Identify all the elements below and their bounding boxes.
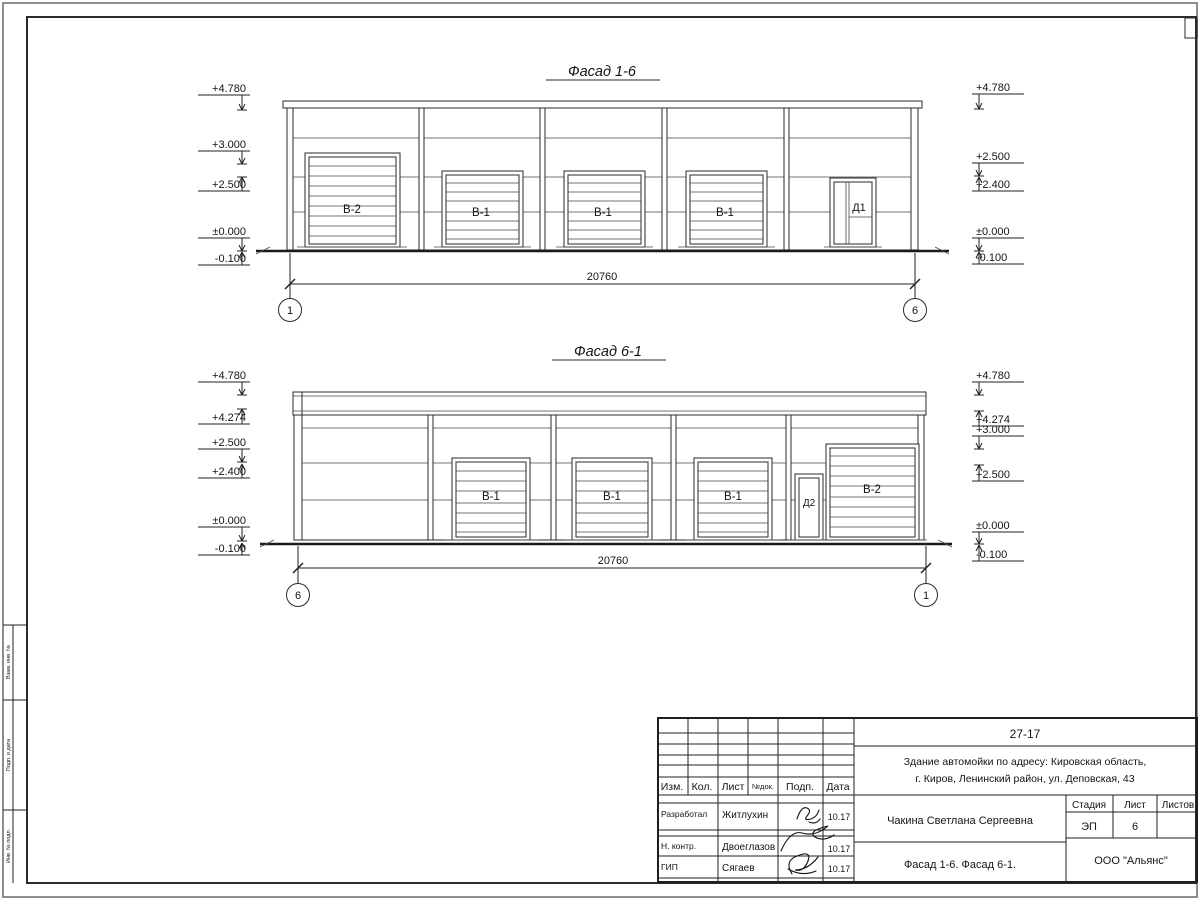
col-data: Дата [826, 781, 849, 793]
elevation-value: ±0.000 [212, 226, 246, 238]
elevation-arrow [972, 532, 1024, 544]
dimension-value: 20760 [598, 555, 629, 567]
signatures [781, 808, 834, 874]
gate-b1-label: В-1 [472, 207, 490, 219]
elevation-value: +2.500 [976, 469, 1010, 481]
row-role: Разработал [661, 809, 707, 819]
axis-number-left: 1 [287, 305, 293, 317]
elevation-arrow [198, 238, 250, 251]
row-name: Житлухин [722, 810, 768, 821]
project-line-1: Здание автомойки по адресу: Кировская об… [904, 756, 1147, 768]
gate-b2-f2: В-2 [826, 444, 919, 540]
col-podp: Подп. [786, 781, 814, 793]
side-stamp: Взам. инв. № Подп. и дата Инв. № подл. [3, 625, 27, 883]
elevation-marks-f1-left: +4.780 +3.000 +2.500 ±0.000 -0.100 [198, 83, 250, 265]
door-d2-label: Д2 [803, 498, 816, 509]
elevation-value: +4.780 [212, 83, 246, 95]
door-d2-f2: Д2 [795, 474, 823, 540]
elevation-value: +2.400 [976, 179, 1010, 191]
mullion [671, 415, 676, 540]
mullion [662, 108, 667, 250]
elevation-value: -0.100 [976, 252, 1007, 264]
elevation-value: +4.780 [976, 82, 1010, 94]
col-kol: Кол. [692, 781, 713, 793]
gate-b1-label: В-1 [724, 491, 742, 503]
gate-b1-label: В-1 [482, 491, 500, 503]
signature-scribble [797, 808, 820, 823]
gate-b1-label: В-1 [594, 207, 612, 219]
author-name: Чакина Светлана Сергеевна [887, 815, 1034, 827]
gate-leaf [309, 157, 396, 244]
row-date: 10.17 [828, 864, 851, 874]
elevation-value: +4.780 [976, 370, 1010, 382]
elevation-value: +4.780 [212, 370, 246, 382]
elevation-value: +2.400 [212, 466, 246, 478]
row-date: 10.17 [828, 812, 851, 822]
gate-b1-f2-3: В-1 [694, 458, 772, 540]
elevation-arrow [198, 527, 250, 541]
axis-number-left: 6 [295, 590, 301, 602]
mullion [540, 108, 545, 250]
stage-label: Стадия [1072, 800, 1106, 811]
gate-b1-f2-2: В-1 [572, 458, 652, 540]
gate-b1-f1-1: В-1 [442, 171, 523, 247]
title-block: Изм. Кол. Лист №док. Подп. Дата Разработ… [658, 718, 1197, 882]
facade-6-1-title: Фасад 6-1 [574, 344, 642, 360]
sheet-number: 6 [1132, 821, 1138, 833]
sheet-canvas: Взам. инв. № Подп. и дата Инв. № подл. Ф… [0, 0, 1200, 900]
gate-b2-label: В-2 [863, 484, 881, 496]
elevation-value: +4.274 [212, 412, 246, 424]
mullion [428, 415, 433, 540]
gate-b1-f1-2: В-1 [564, 171, 645, 247]
col-izm: Изм. [661, 781, 684, 793]
gate-b1-label: В-1 [716, 207, 734, 219]
elevation-arrow [198, 382, 250, 395]
parapet-cap [283, 101, 922, 108]
elevation-value: +2.500 [212, 437, 246, 449]
col-list: Лист [722, 781, 745, 793]
axis-number-right: 1 [923, 590, 929, 602]
signature-scribble [788, 854, 818, 874]
elevation-value: ±0.000 [212, 515, 246, 527]
elevation-marks-f2-right: +4.780 +4.274 +3.000 +2.500 ±0.000 -0.10… [972, 370, 1024, 561]
gate-b1-f2-1: В-1 [452, 458, 530, 540]
parapet-band [293, 392, 926, 415]
row-name: Сягаев [722, 863, 755, 874]
elevation-arrow [972, 94, 1024, 109]
gate-b1-f1-3: В-1 [686, 171, 767, 247]
project-line-2: г. Киров, Ленинский район, ул. Деповская… [915, 773, 1134, 785]
axis-number-right: 6 [912, 305, 918, 317]
doc-number: 27-17 [1010, 727, 1041, 741]
mullion [419, 108, 424, 250]
facade-1-6-title: Фасад 1-6 [568, 64, 637, 80]
mullion [784, 108, 789, 250]
sheet-label: Лист [1124, 800, 1146, 811]
elevation-arrow [198, 95, 250, 110]
elevation-arrow [972, 382, 1024, 395]
gate-b2-f1: В-2 [305, 153, 400, 247]
row-date: 10.17 [828, 844, 851, 854]
elevation-arrow [972, 163, 1024, 176]
sheets-label: Листов [1162, 800, 1195, 811]
ground-f2 [260, 540, 952, 547]
row-role: ГИП [661, 862, 678, 872]
elevation-arrow [198, 449, 250, 462]
door-d1-label: Д1 [852, 202, 866, 214]
elevation-value: +2.500 [212, 179, 246, 191]
elevation-value: ±0.000 [976, 226, 1010, 238]
row-role: Н. контр. [661, 841, 696, 851]
side-stamp-label-1: Взам. инв. № [6, 645, 12, 679]
drawing-title: Фасад 1-6. Фасад 6-1. [904, 859, 1016, 871]
elevation-value: -0.100 [215, 543, 246, 555]
dimension-f1: 20760 1 6 [279, 253, 927, 322]
facade-6-1-drawing: Фасад 6-1 В-1 В-1 [198, 344, 1024, 607]
side-stamp-label-2: Подп. и дата [6, 738, 12, 771]
mullion [551, 415, 556, 540]
drawing-sheet: Взам. инв. № Подп. и дата Инв. № подл. Ф… [0, 0, 1200, 900]
mullion [786, 415, 791, 540]
facade-1-6-drawing: Фасад 1-6 В-2 В-1 [198, 64, 1024, 322]
elevation-value: -0.100 [976, 549, 1007, 561]
elevation-value: +2.500 [976, 151, 1010, 163]
elevation-arrow [972, 238, 1024, 251]
dimension-f2: 20760 6 1 [287, 546, 938, 607]
door-d1-f1: Д1 [830, 178, 876, 247]
company-name: ООО "Альянс" [1094, 855, 1168, 867]
side-stamp-label-3: Инв. № подл. [6, 828, 12, 863]
elevation-value: ±0.000 [976, 520, 1010, 532]
elevation-arrow [198, 151, 250, 164]
elevation-marks-f1-right: +4.780 +2.500 +2.400 ±0.000 -0.100 [972, 82, 1024, 264]
col-ndok: №док. [752, 782, 774, 791]
elevation-value: +3.000 [976, 424, 1010, 436]
gate-b2-label: В-2 [343, 204, 361, 216]
dimension-value: 20760 [587, 271, 618, 283]
gate-b1-label: В-1 [603, 491, 621, 503]
row-name: Двоеглазов [722, 842, 775, 853]
elevation-value: +3.000 [212, 139, 246, 151]
elevation-marks-f2-left: +4.780 +4.274 +2.500 +2.400 ±0.000 -0.10… [198, 370, 250, 555]
elevation-value: -0.100 [215, 253, 246, 265]
stage-value: ЭП [1081, 821, 1097, 833]
elevation-arrow [972, 436, 1024, 449]
